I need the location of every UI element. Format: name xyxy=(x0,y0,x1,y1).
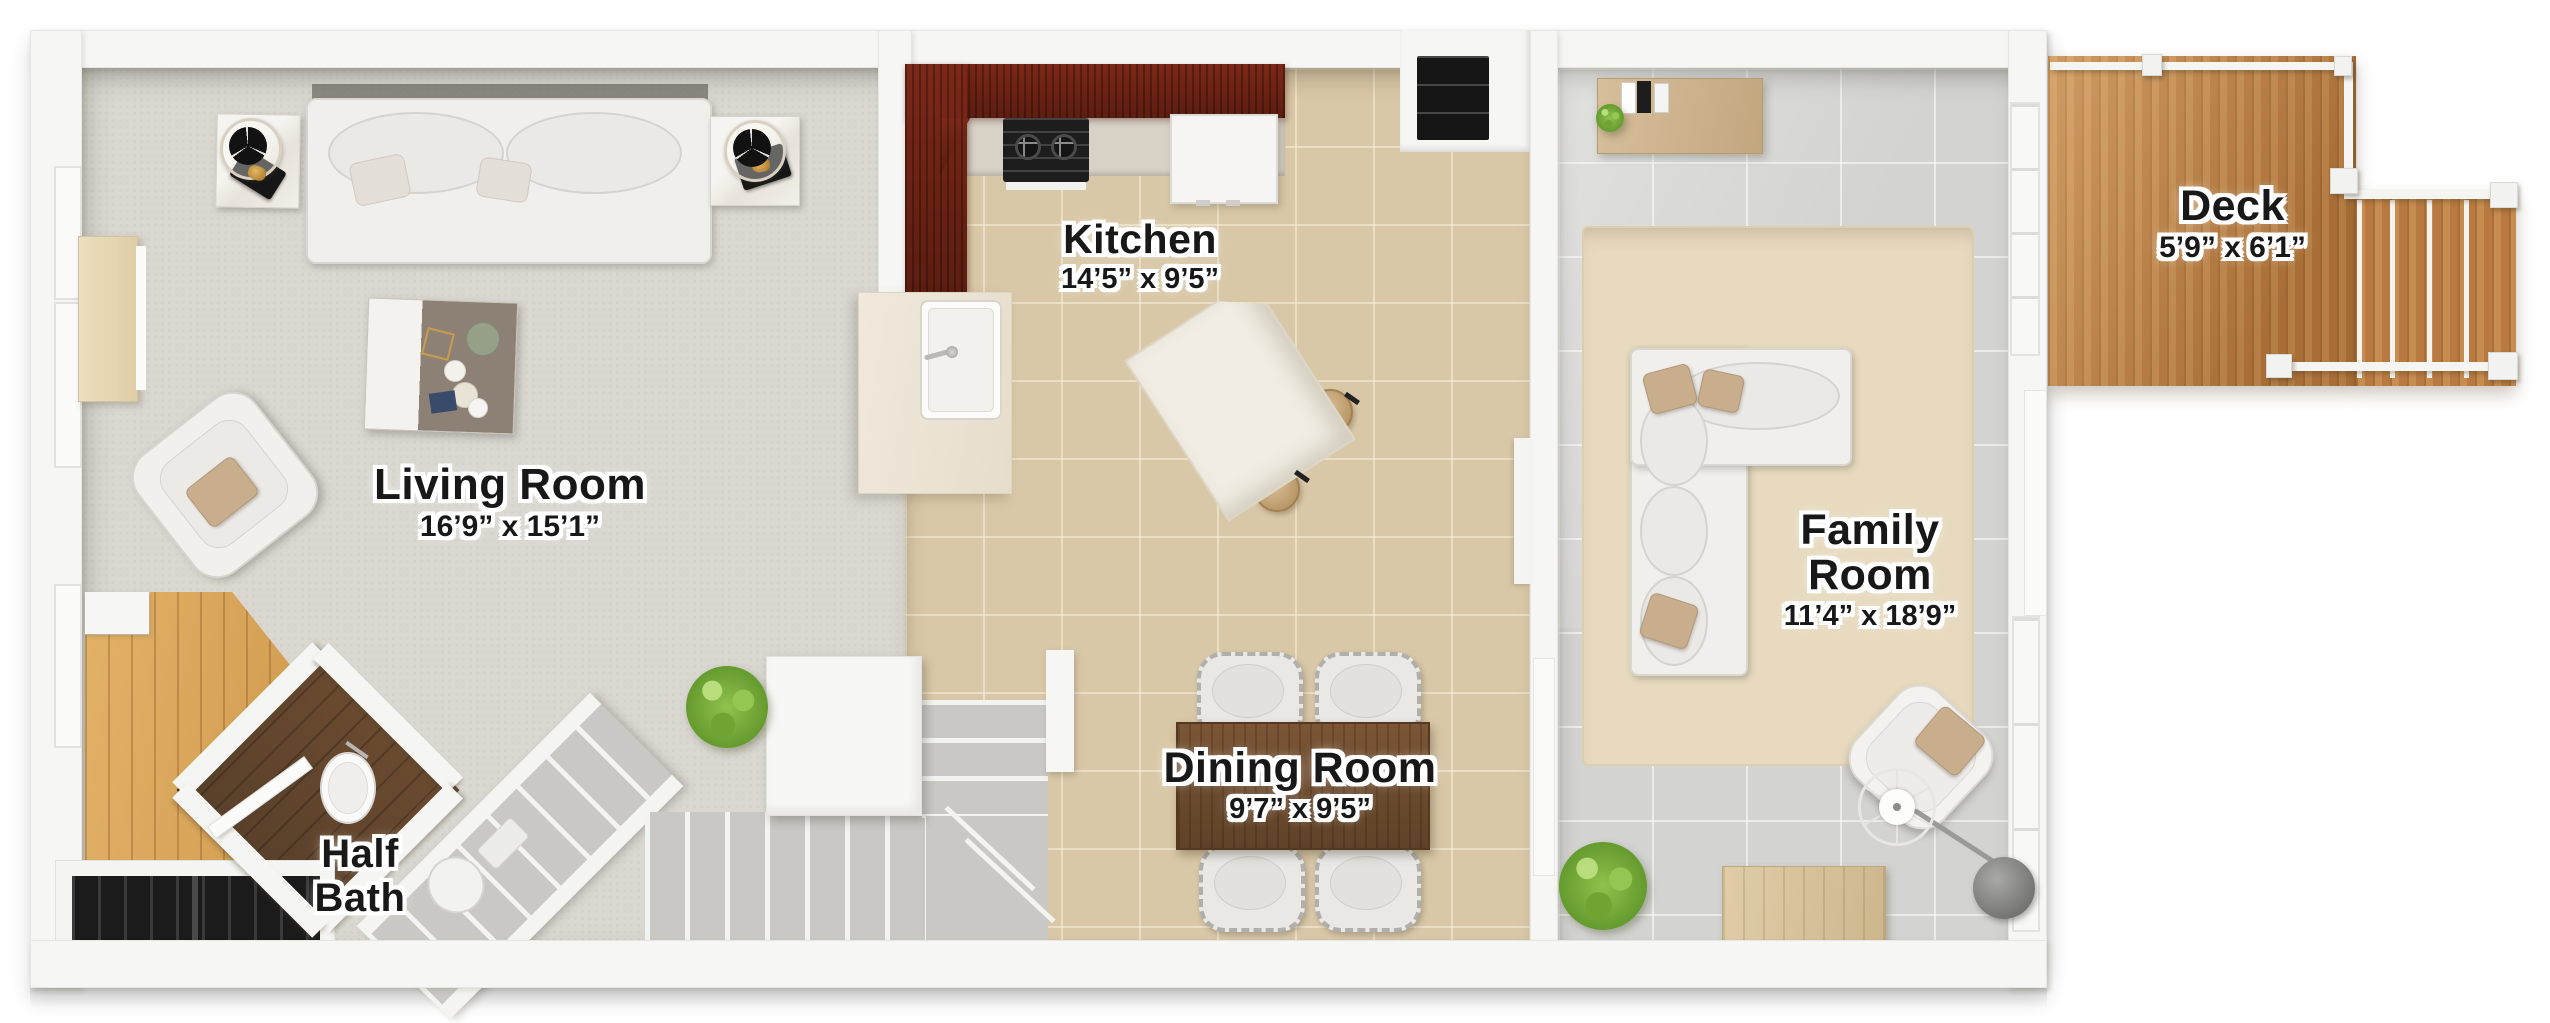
kitchen-cart xyxy=(1170,114,1278,204)
fireplace-console xyxy=(78,236,138,402)
closet-divider xyxy=(192,876,198,946)
label-deck: Deck 5’9” x 6’1” xyxy=(2125,184,2340,267)
deck-railing-bottom xyxy=(2268,362,2514,371)
floor-plan-canvas: Living Room 16’9” x 15’1” Kitchen 14’5” … xyxy=(0,0,2550,1023)
deck-post-5 xyxy=(2488,352,2518,380)
dining-chair-2-cushion xyxy=(1330,664,1402,718)
stair-flight-right xyxy=(922,700,1048,818)
deck-stair-tread-2 xyxy=(2427,200,2432,378)
half-bath-name-line1: Half xyxy=(265,832,455,876)
kitchen-cart-handle-1 xyxy=(1196,200,1210,206)
deck-name: Deck xyxy=(2125,184,2340,229)
kitchen-dims: 14’5” x 9’5” xyxy=(955,261,1325,297)
fireplace-surround xyxy=(136,246,146,390)
deck-post-1 xyxy=(2142,54,2162,76)
desk-book-3 xyxy=(1654,83,1669,113)
sectional-cushion-2 xyxy=(1640,486,1708,576)
family-bench xyxy=(1722,866,1886,946)
deck-railing-mid xyxy=(2344,190,2514,199)
entry-wall-stub xyxy=(85,592,149,634)
dining-chair-1-cushion xyxy=(1212,664,1284,718)
window-right-sill xyxy=(2024,390,2047,616)
deck-post-2 xyxy=(2334,56,2352,76)
sofa-cushion-right xyxy=(506,112,682,194)
dining-chair-3-cushion xyxy=(1214,856,1286,910)
sofa-pillow-2 xyxy=(475,156,533,204)
dining-room-dims: 9’7” x 9’5” xyxy=(1110,791,1490,827)
kitchen-name: Kitchen xyxy=(955,218,1325,261)
label-living-room: Living Room 16’9” x 15’1” xyxy=(310,462,710,546)
label-dining-room: Dining Room 9’7” x 9’5” xyxy=(1110,746,1490,827)
wall-niche xyxy=(1514,438,1531,584)
family-room-name-line2: Room xyxy=(1760,553,1980,598)
coffee-table-plate-1 xyxy=(444,360,466,382)
family-plant xyxy=(1559,842,1647,930)
coffee-table-book xyxy=(429,390,458,413)
dining-chair-4-cushion xyxy=(1330,856,1402,910)
deck-railing-top xyxy=(2050,62,2348,70)
deck-stair-tread-1 xyxy=(2390,200,2395,378)
coffee-table xyxy=(364,297,519,434)
dining-room-name: Dining Room xyxy=(1110,746,1490,791)
coffee-table-plate-green xyxy=(466,322,500,356)
deck-post-4 xyxy=(2266,354,2292,378)
stove-front-edge xyxy=(1006,182,1086,190)
coffee-table-plate-3 xyxy=(468,398,488,418)
table-lamp-left-shade xyxy=(229,127,267,165)
wall-door-panel xyxy=(1533,658,1555,876)
stair-flight-bottom xyxy=(645,812,927,942)
wall-bottom xyxy=(30,940,2047,988)
arc-lamp-base xyxy=(1973,857,2035,919)
stove-burner-1 xyxy=(1015,134,1041,160)
kitchen-sink-basin xyxy=(928,308,994,412)
stair-end-wall xyxy=(1046,650,1074,772)
deck-stair-edge xyxy=(2357,200,2362,378)
living-room-name: Living Room xyxy=(310,462,710,508)
stair-winder-corner xyxy=(926,816,1048,942)
bathroom-sink-bowl xyxy=(328,762,368,814)
label-half-bath: Half Bath xyxy=(265,832,455,920)
arc-lamp-shade-dot xyxy=(1893,803,1901,811)
label-kitchen: Kitchen 14’5” x 9’5” xyxy=(955,218,1325,297)
deck-stair-tread-3 xyxy=(2464,200,2469,378)
deck-dims: 5’9” x 6’1” xyxy=(2125,229,2340,267)
deck-railing-right xyxy=(2344,62,2353,180)
kitchen-cart-handle-2 xyxy=(1226,200,1240,206)
window-right-top xyxy=(2010,102,2040,356)
wall-bottom-ground-shadow xyxy=(30,988,2047,1008)
family-room-dims: 11’4” x 18’9” xyxy=(1760,598,1980,634)
family-room-name-line1: Family xyxy=(1760,508,1980,553)
half-bath-name-line2: Bath xyxy=(265,876,455,920)
kitchen-faucet-head xyxy=(946,346,958,358)
refrigerator xyxy=(1417,56,1489,140)
desk-book-1 xyxy=(1621,82,1636,114)
window-left-3 xyxy=(54,584,82,748)
desk-plant xyxy=(1596,104,1624,132)
wall-top xyxy=(30,30,2047,68)
label-family-room: Family Room 11’4” x 18’9” xyxy=(1760,508,1980,635)
stove-burner-2 xyxy=(1051,134,1077,160)
desk-book-2 xyxy=(1637,81,1651,113)
table-lamp-right-shade xyxy=(733,129,771,167)
deck-post-3 xyxy=(2490,182,2518,208)
stair-plant xyxy=(686,666,768,748)
stair-center-block xyxy=(766,656,922,816)
living-room-dims: 16’9” x 15’1” xyxy=(310,508,710,546)
